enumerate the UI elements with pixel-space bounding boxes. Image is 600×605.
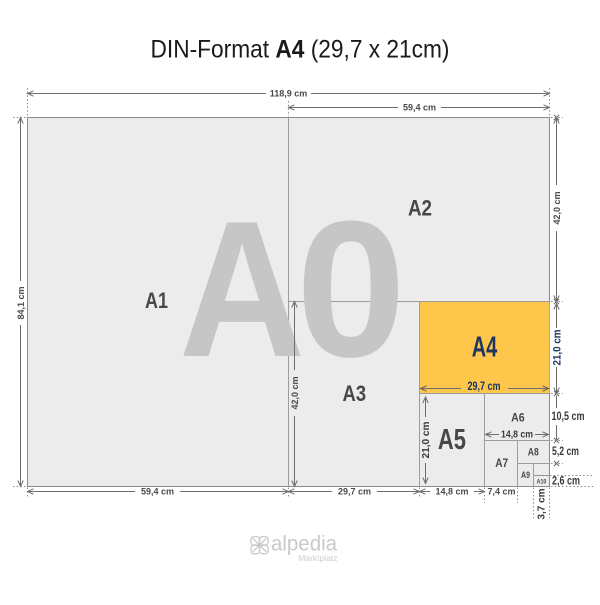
- svg-text:alpedia: alpedia: [271, 532, 337, 556]
- svg-text:21,0 cm: 21,0 cm: [552, 329, 564, 365]
- svg-text:Marktplatz: Marktplatz: [298, 553, 337, 563]
- svg-text:118,9 cm: 118,9 cm: [270, 89, 308, 99]
- svg-text:7,4 cm: 7,4 cm: [487, 487, 515, 497]
- svg-text:21,0 cm: 21,0 cm: [421, 421, 432, 458]
- svg-text:42,0 cm: 42,0 cm: [290, 376, 300, 409]
- svg-text:29,7 cm: 29,7 cm: [338, 487, 371, 497]
- svg-text:5,2 cm: 5,2 cm: [552, 446, 579, 458]
- svg-text:0: 0: [296, 181, 406, 398]
- svg-text:A3: A3: [343, 381, 367, 406]
- svg-text:A: A: [179, 181, 305, 398]
- svg-text:DIN-Format A4 (29,7 x 21cm): DIN-Format A4 (29,7 x 21cm): [151, 36, 450, 64]
- svg-text:A5: A5: [438, 424, 466, 456]
- svg-text:42,0 cm: 42,0 cm: [552, 191, 562, 224]
- svg-text:A1: A1: [145, 288, 168, 313]
- svg-text:2,6 cm: 2,6 cm: [552, 476, 580, 488]
- svg-text:84,1 cm: 84,1 cm: [16, 286, 26, 319]
- svg-text:A4: A4: [472, 331, 498, 363]
- svg-text:A2: A2: [408, 196, 432, 221]
- svg-text:14,8 cm: 14,8 cm: [435, 487, 468, 497]
- svg-text:3,7 cm: 3,7 cm: [537, 488, 548, 519]
- svg-text:59,4 cm: 59,4 cm: [403, 103, 436, 113]
- svg-text:A6: A6: [511, 411, 525, 425]
- svg-text:A8: A8: [528, 446, 539, 458]
- svg-text:A9: A9: [521, 470, 530, 480]
- svg-text:59,4 cm: 59,4 cm: [141, 487, 174, 497]
- svg-text:A10: A10: [537, 479, 547, 486]
- svg-text:29,7 cm: 29,7 cm: [468, 381, 501, 393]
- svg-text:14,8 cm: 14,8 cm: [501, 430, 533, 441]
- svg-text:A7: A7: [495, 456, 508, 470]
- svg-text:10,5 cm: 10,5 cm: [552, 411, 585, 423]
